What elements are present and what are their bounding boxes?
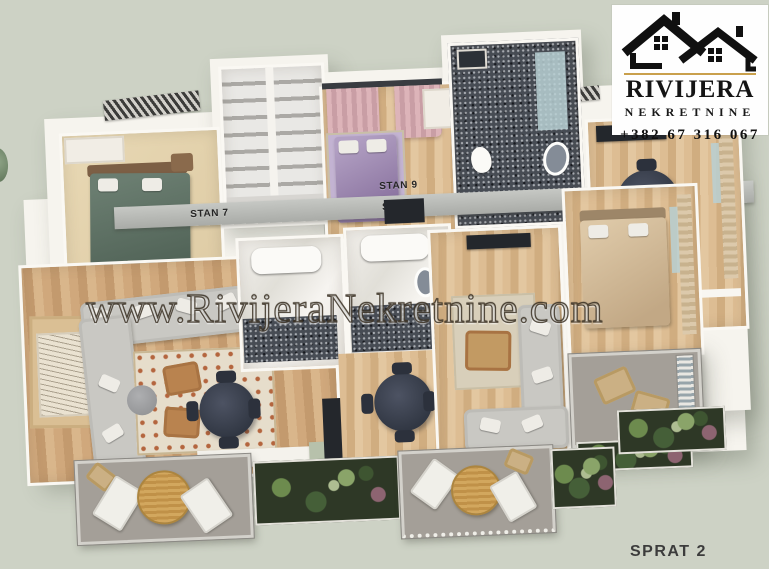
living-room-right: [427, 225, 571, 464]
oval-mirror: [541, 140, 572, 178]
apartment-label-stan9: STAN 9: [379, 180, 418, 193]
watermark-text: www.RivijeraNekretnine.com: [86, 284, 726, 332]
tv-screen: [466, 233, 531, 250]
nightstand: [171, 153, 194, 172]
planter-box: [617, 406, 727, 454]
apartment-label-stan7: STAN 7: [190, 207, 229, 220]
planter-box: [550, 447, 616, 510]
bedroom-right: [561, 183, 704, 361]
sofa-pillow: [98, 373, 122, 393]
rattan-lounge-chair: [593, 365, 637, 405]
coffee-table-tan: [465, 330, 511, 370]
bathtub: [251, 246, 322, 275]
logo-divider: [624, 73, 756, 75]
rattan-chair: [503, 447, 535, 475]
bed-pillow: [366, 139, 387, 153]
bed-pillow: [588, 225, 609, 239]
bed-pillow: [142, 178, 162, 191]
armchair-tan: [162, 361, 203, 397]
sofa-pillow: [521, 414, 544, 434]
bathtub: [360, 233, 429, 262]
sofa-pillow: [531, 366, 554, 385]
wardrobe: [64, 136, 125, 164]
logo-phone: +382 67 316 067: [612, 127, 768, 144]
sofa-pillow: [479, 417, 501, 434]
door-opening: [384, 198, 425, 224]
planter-box: [253, 456, 402, 526]
bed-pillow: [338, 140, 359, 154]
floor-label: SPRAT 2: [630, 543, 707, 561]
tree-foliage: [0, 148, 9, 183]
logo-subtitle: NEKRETNINE: [612, 105, 768, 120]
houses-logo-icon: [620, 8, 760, 72]
dining-chair: [394, 430, 414, 443]
beige-curtain: [718, 128, 738, 278]
skylight: [457, 49, 488, 70]
bed-pillow: [628, 223, 649, 237]
pink-curtain: [326, 87, 380, 137]
floorplan-render: STAN 7 STAN 8 STAN 9: [0, 0, 769, 569]
sofa-gray-arm: [464, 405, 570, 451]
dining-chair: [219, 436, 239, 449]
sofa-pillow: [101, 422, 125, 444]
toilet: [469, 145, 494, 175]
logo-title: RIVIJERA: [612, 77, 768, 103]
shower-glass: [535, 51, 568, 130]
terrace-left: [74, 454, 253, 545]
terrace-middle: [398, 445, 556, 538]
bed-pillow: [98, 178, 118, 191]
agency-logo: RIVIJERA NEKRETNINE +382 67 316 067: [612, 5, 768, 135]
dining-table-round: [373, 372, 433, 432]
